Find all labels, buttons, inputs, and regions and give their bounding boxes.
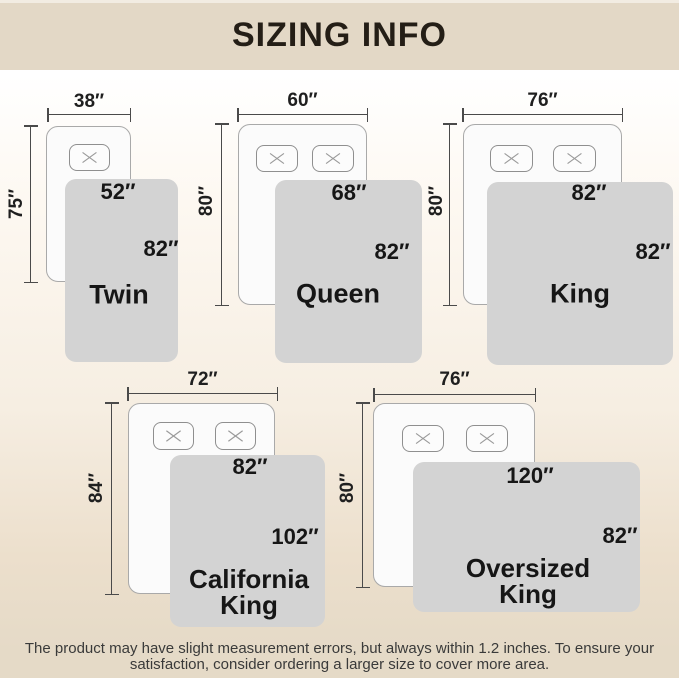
blanket-width-label: 52″ bbox=[100, 179, 135, 205]
width-dimension-line bbox=[128, 393, 277, 394]
length-dimension-line bbox=[221, 124, 222, 305]
width-dimension-label: 76″ bbox=[374, 369, 535, 391]
pillow bbox=[466, 425, 508, 452]
disclaimer-line-1: The product may have slight measurement … bbox=[0, 641, 679, 657]
blanket bbox=[275, 180, 422, 363]
size-name-label: Twin bbox=[89, 282, 148, 309]
pillow-x-icon bbox=[554, 146, 595, 171]
pillow bbox=[490, 145, 533, 172]
pillow bbox=[402, 425, 444, 452]
page-title: SIZING INFO bbox=[0, 3, 679, 67]
blanket-length-label: 82″ bbox=[602, 523, 637, 549]
pillow-x-icon bbox=[216, 423, 255, 449]
pillow-x-icon bbox=[154, 423, 193, 449]
width-dimension-line bbox=[374, 394, 535, 395]
length-dimension-line bbox=[449, 124, 450, 305]
pillow-x-icon bbox=[313, 146, 353, 171]
disclaimer-text: The product may have slight measurement … bbox=[0, 641, 679, 673]
blanket-width-label: 120″ bbox=[506, 463, 553, 489]
pillow-x-icon bbox=[70, 145, 109, 170]
size-name-line: King bbox=[189, 592, 309, 618]
length-dimension-line bbox=[30, 126, 31, 282]
pillow-x-icon bbox=[467, 426, 507, 451]
length-dimension-label: 84″ bbox=[86, 473, 108, 503]
blanket bbox=[65, 179, 178, 362]
length-dimension-label: 80″ bbox=[426, 186, 448, 216]
length-dimension-label: 80″ bbox=[337, 473, 359, 503]
pillow-x-icon bbox=[257, 146, 297, 171]
size-name-line: California bbox=[189, 566, 309, 592]
blanket-length-label: 82″ bbox=[374, 239, 409, 265]
disclaimer-line-2: satisfaction, consider ordering a larger… bbox=[0, 657, 679, 673]
pillow-x-icon bbox=[491, 146, 532, 171]
size-name-label: California King bbox=[189, 566, 309, 618]
length-dimension-line bbox=[111, 403, 112, 594]
pillow-x-icon bbox=[403, 426, 443, 451]
pillow bbox=[69, 144, 110, 171]
blanket-width-label: 82″ bbox=[571, 180, 606, 206]
width-dimension-label: 38″ bbox=[48, 91, 130, 113]
size-name-line: Oversized bbox=[466, 555, 590, 581]
size-name-line: King bbox=[466, 581, 590, 607]
pillow bbox=[553, 145, 596, 172]
blanket-width-label: 82″ bbox=[232, 454, 267, 480]
width-dimension-line bbox=[48, 114, 130, 115]
width-dimension-label: 72″ bbox=[128, 369, 277, 391]
blanket-width-label: 68″ bbox=[331, 180, 366, 206]
pillow bbox=[215, 422, 256, 450]
length-dimension-line bbox=[362, 403, 363, 587]
width-dimension-label: 76″ bbox=[463, 90, 622, 112]
width-dimension-line bbox=[463, 114, 622, 115]
length-dimension-label: 80″ bbox=[196, 186, 218, 216]
header-band: SIZING INFO bbox=[0, 0, 679, 70]
size-name-label: Queen bbox=[296, 281, 380, 308]
pillow bbox=[312, 145, 354, 172]
blanket-length-label: 82″ bbox=[143, 236, 178, 262]
pillow bbox=[256, 145, 298, 172]
size-name-label: King bbox=[550, 281, 610, 308]
width-dimension-line bbox=[238, 114, 367, 115]
blanket-length-label: 82″ bbox=[635, 239, 670, 265]
sizing-info-graphic: SIZING INFO 38″ 75″ 52″ 82″ Twin 60″ 80″… bbox=[0, 0, 679, 678]
blanket bbox=[487, 182, 673, 365]
size-name-label: Oversized King bbox=[466, 555, 590, 607]
width-dimension-label: 60″ bbox=[238, 90, 367, 112]
length-dimension-label: 75″ bbox=[6, 189, 28, 219]
blanket-length-label: 102″ bbox=[271, 524, 318, 550]
pillow bbox=[153, 422, 194, 450]
